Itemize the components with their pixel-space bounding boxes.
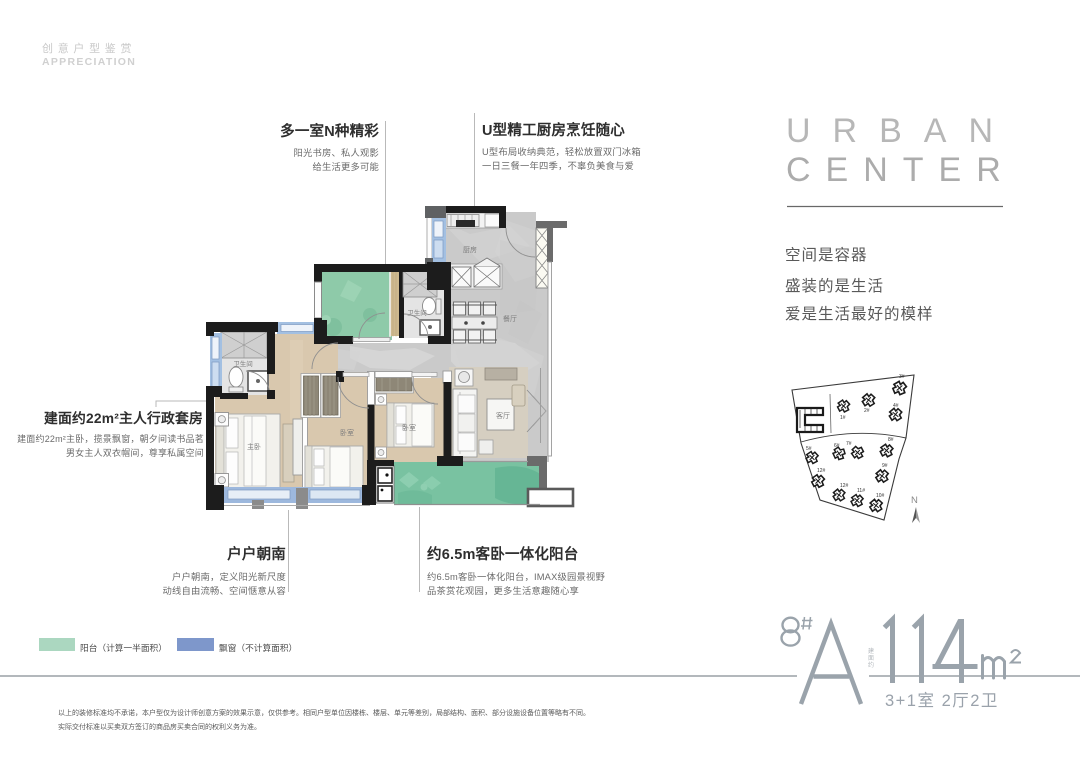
- svg-text:餐厅: 餐厅: [503, 314, 517, 323]
- svg-text:6#: 6#: [834, 443, 840, 449]
- svg-text:厨房: 厨房: [463, 245, 477, 254]
- svg-text:9#: 9#: [882, 463, 888, 469]
- svg-text:8#: 8#: [888, 437, 894, 443]
- svg-text:4#: 4#: [893, 403, 899, 409]
- svg-text:2#: 2#: [864, 408, 870, 414]
- svg-text:卧室: 卧室: [402, 423, 416, 432]
- svg-text:卫生间: 卫生间: [233, 359, 253, 368]
- svg-text:7#: 7#: [846, 441, 852, 447]
- svg-text:11#: 11#: [857, 488, 865, 494]
- svg-text:卫生间: 卫生间: [407, 308, 427, 317]
- svg-text:客厅: 客厅: [496, 411, 510, 420]
- svg-text:10#: 10#: [876, 493, 885, 499]
- svg-text:主卧: 主卧: [247, 442, 261, 451]
- svg-text:5#: 5#: [806, 446, 812, 452]
- svg-text:1#: 1#: [840, 415, 846, 421]
- svg-text:N: N: [911, 495, 918, 506]
- svg-text:卧室: 卧室: [340, 428, 354, 437]
- svg-text:12#: 12#: [817, 468, 826, 474]
- svg-text:3#: 3#: [899, 374, 905, 380]
- svg-text:12#: 12#: [840, 483, 849, 489]
